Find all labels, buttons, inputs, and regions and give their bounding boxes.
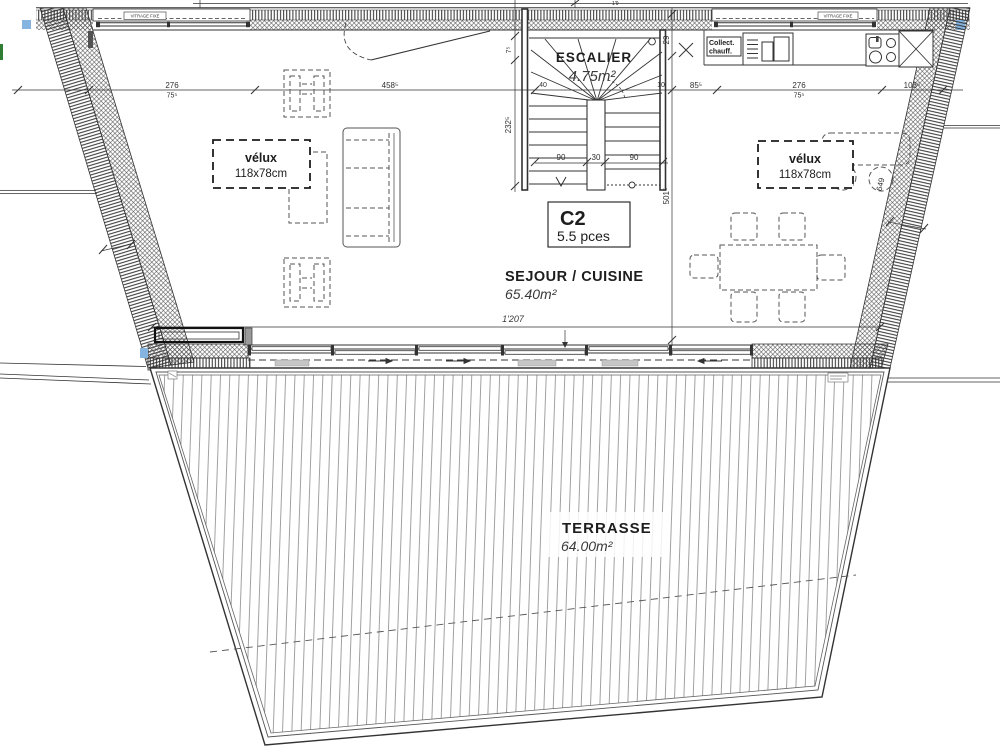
armchair-bottom bbox=[284, 258, 330, 307]
appliance-unit bbox=[743, 33, 793, 65]
dim-276-right: 276 bbox=[792, 81, 806, 90]
fixed-glazing-left: VITRAGE FIXE bbox=[93, 9, 250, 27]
terrace-tag-left bbox=[168, 371, 177, 379]
skylight-left: vélux 118x78cm bbox=[213, 140, 310, 188]
staircase: 90 30 90 ESCALIER 4.75m² bbox=[522, 9, 668, 190]
sink-cooktop bbox=[866, 34, 899, 66]
skylight-right-size: 118x78cm bbox=[779, 169, 831, 181]
area-label-stair: 4.75m² bbox=[569, 68, 617, 85]
terrace-decking bbox=[159, 375, 881, 733]
armchair-top bbox=[284, 70, 330, 117]
dim-75-right: 75⁵ bbox=[794, 93, 805, 100]
vitrage-fixe-label-left: VITRAGE FIXE bbox=[131, 13, 160, 18]
dim-40: 40 bbox=[539, 82, 547, 89]
stair-down-arrow bbox=[556, 177, 566, 186]
dim-232: 232⁵ bbox=[504, 117, 513, 134]
dim-90-right: 90 bbox=[630, 153, 639, 162]
blue-marker-bottomleft bbox=[140, 348, 148, 358]
unit-code: C2 bbox=[560, 208, 586, 230]
skylight-left-size: 118x78cm bbox=[235, 168, 287, 180]
dimension-chain-top: 276 75⁵ 458⁵ 40 10 85⁵ 276 75⁵ 103⁵ bbox=[12, 81, 963, 100]
left-wall bbox=[40, 8, 194, 368]
living-furniture bbox=[284, 70, 400, 307]
dim-10: 10 bbox=[657, 82, 665, 89]
unit-pieces: 5.5 pces bbox=[557, 228, 610, 244]
skylight-left-label: vélux bbox=[245, 151, 277, 165]
south-facade bbox=[140, 328, 888, 370]
dim-30: 30 bbox=[592, 153, 601, 162]
fixed-glazing-right: VITRAGE FIXE bbox=[712, 9, 877, 27]
wall-chunk-right bbox=[752, 344, 888, 370]
sliding-windows bbox=[248, 345, 753, 367]
room-label-stair: ESCALIER bbox=[556, 50, 632, 65]
dim-top-partial: 1'9 bbox=[612, 1, 619, 7]
chauff-label: chauff. bbox=[709, 49, 732, 56]
heating-manifold-box: Collect. chauff. bbox=[707, 37, 741, 56]
room-label-terrace: TERRASSE bbox=[562, 520, 652, 537]
shaft-box bbox=[899, 31, 933, 67]
collect-label: Collect. bbox=[709, 40, 734, 47]
dim-90-left: 90 bbox=[557, 153, 566, 162]
area-label-living: 65.40m² bbox=[505, 286, 558, 302]
dining-set bbox=[690, 213, 845, 322]
terrace: TERRASSE 64.00m² bbox=[150, 368, 890, 745]
dim-1207: 1'207 bbox=[502, 314, 525, 324]
terrace-label-group: TERRASSE 64.00m² bbox=[548, 512, 663, 557]
kitchen: Collect. chauff. bbox=[704, 30, 933, 67]
dim-7: 7⁵ bbox=[506, 47, 513, 54]
skylight-right: vélux 118x78cm bbox=[758, 141, 853, 188]
vitrage-fixe-label-right: VITRAGE FIXE bbox=[824, 13, 853, 18]
dim-649: 649 bbox=[875, 176, 887, 192]
sofa bbox=[343, 128, 400, 247]
floor-plan-page: VITRAGE FIXE VITRAGE FIXE bbox=[0, 0, 1000, 747]
room-label-living: SEJOUR / CUISINE bbox=[505, 269, 644, 285]
terrace-tag-right bbox=[828, 373, 848, 382]
dim-103: 103⁵ bbox=[904, 81, 921, 90]
dimension-vertical-right: 29 501⁵ bbox=[662, 8, 693, 346]
dim-276-left: 276 bbox=[165, 81, 179, 90]
floor-plan-svg: VITRAGE FIXE VITRAGE FIXE bbox=[0, 0, 1000, 747]
dim-501: 501⁵ bbox=[662, 188, 671, 205]
dim-458: 458⁵ bbox=[382, 81, 399, 90]
top-edge-ticks: 1'9 bbox=[200, 0, 619, 8]
top-wall: VITRAGE FIXE VITRAGE FIXE bbox=[22, 4, 970, 49]
green-boundary-mark bbox=[0, 44, 3, 60]
unit-label-box: C2 5.5 pces bbox=[548, 202, 630, 247]
skylight-right-label: vélux bbox=[789, 152, 821, 166]
blue-marker-topleft bbox=[22, 20, 31, 29]
dimension-1207: 1'207 bbox=[148, 314, 884, 348]
area-label-terrace: 64.00m² bbox=[561, 538, 614, 554]
dim-85: 85⁵ bbox=[690, 81, 702, 90]
dim-75-left: 75⁵ bbox=[167, 93, 178, 100]
dim-29: 29 bbox=[662, 35, 671, 44]
